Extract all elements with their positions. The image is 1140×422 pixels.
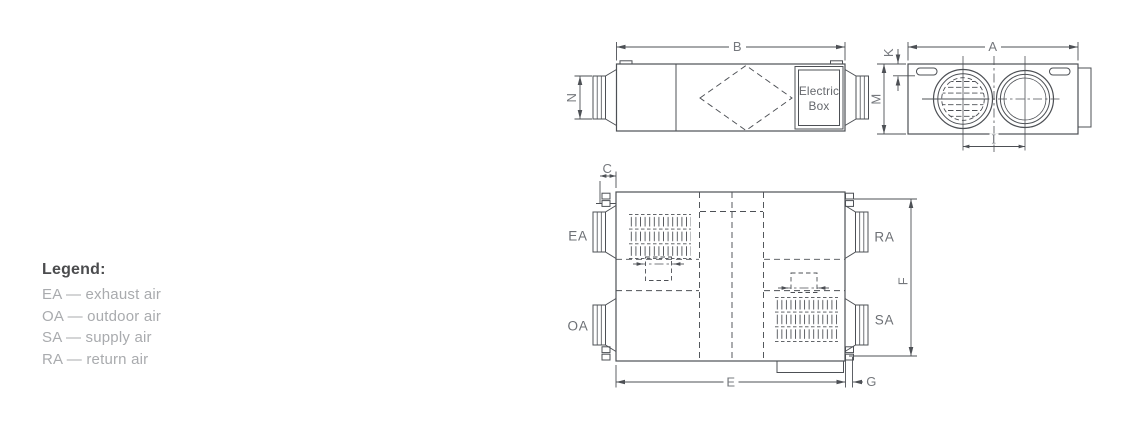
dim-f: F <box>849 199 917 356</box>
dim-n: N <box>564 76 592 119</box>
technical-drawing: B Electric Box <box>0 0 1140 422</box>
plan-view: C <box>567 161 917 389</box>
electric-box: Electric Box <box>795 67 843 130</box>
port-label-sa: SA <box>875 313 895 328</box>
dim-label-b: B <box>733 39 742 54</box>
dim-label-k: K <box>881 48 896 57</box>
fan-grille-exhaust <box>629 214 691 258</box>
dim-label-i: I <box>991 132 996 147</box>
mounting-slot-left <box>917 68 938 75</box>
dim-e: E <box>616 357 846 389</box>
dim-label-a: A <box>988 39 997 54</box>
port-ea <box>593 206 616 259</box>
side-view: B Electric Box <box>564 39 869 131</box>
fan-grille-supply <box>775 297 838 341</box>
electric-box-label-line2: Box <box>809 99 830 113</box>
mounting-tab-left <box>620 61 632 64</box>
port-ra <box>845 206 868 259</box>
electric-box-label-line1: Electric <box>799 84 839 98</box>
duct-spigot-side-right <box>845 70 869 126</box>
dim-g: G <box>853 357 877 389</box>
port-label-oa: OA <box>567 319 588 334</box>
electric-box-bottom <box>777 361 844 373</box>
port-oa <box>593 299 616 352</box>
dim-m: M <box>869 64 907 134</box>
dim-k: K <box>881 48 915 91</box>
dim-label-e: E <box>726 374 735 389</box>
dimensions-drawing-page: Legend: EA — exhaust air OA — outdoor ai… <box>0 0 1140 422</box>
dim-a: A <box>908 39 1078 61</box>
dim-label-m: M <box>869 93 884 104</box>
dim-label-f: F <box>896 277 911 285</box>
end-view: A K M <box>869 39 1092 152</box>
duct-spigot-side-left <box>593 70 617 126</box>
side-panel <box>1078 68 1091 127</box>
fan-motor-exhaust <box>633 257 684 281</box>
port-label-ra: RA <box>874 230 894 245</box>
fan-motor-supply <box>778 273 829 293</box>
mounting-slot-right <box>1050 68 1071 75</box>
dim-b: B <box>617 39 846 61</box>
port-label-ea: EA <box>568 229 588 244</box>
dim-label-g: G <box>866 374 877 389</box>
port-sa <box>845 299 868 352</box>
dim-label-c: C <box>603 161 613 176</box>
heat-exchanger-symbol <box>700 66 792 131</box>
mounting-tab-right <box>831 61 843 64</box>
dim-label-n: N <box>564 93 579 103</box>
